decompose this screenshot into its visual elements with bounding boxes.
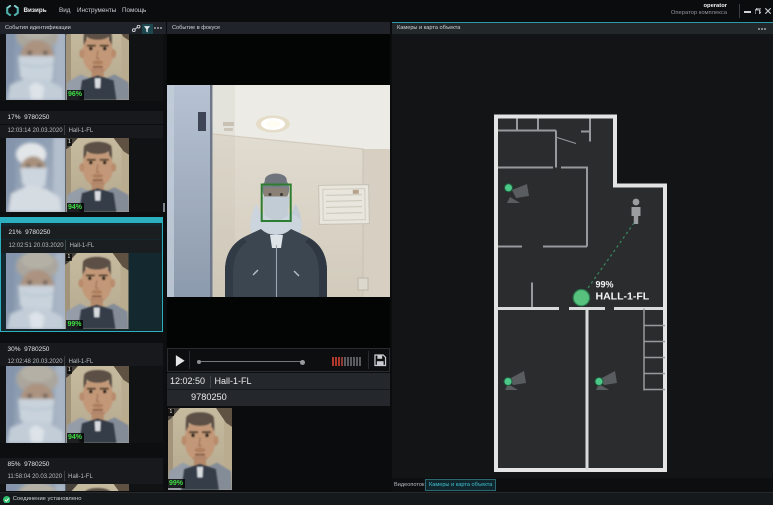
svg-text:HALL-1-FL: HALL-1-FL (596, 291, 650, 303)
svg-text:99%: 99% (596, 280, 614, 290)
